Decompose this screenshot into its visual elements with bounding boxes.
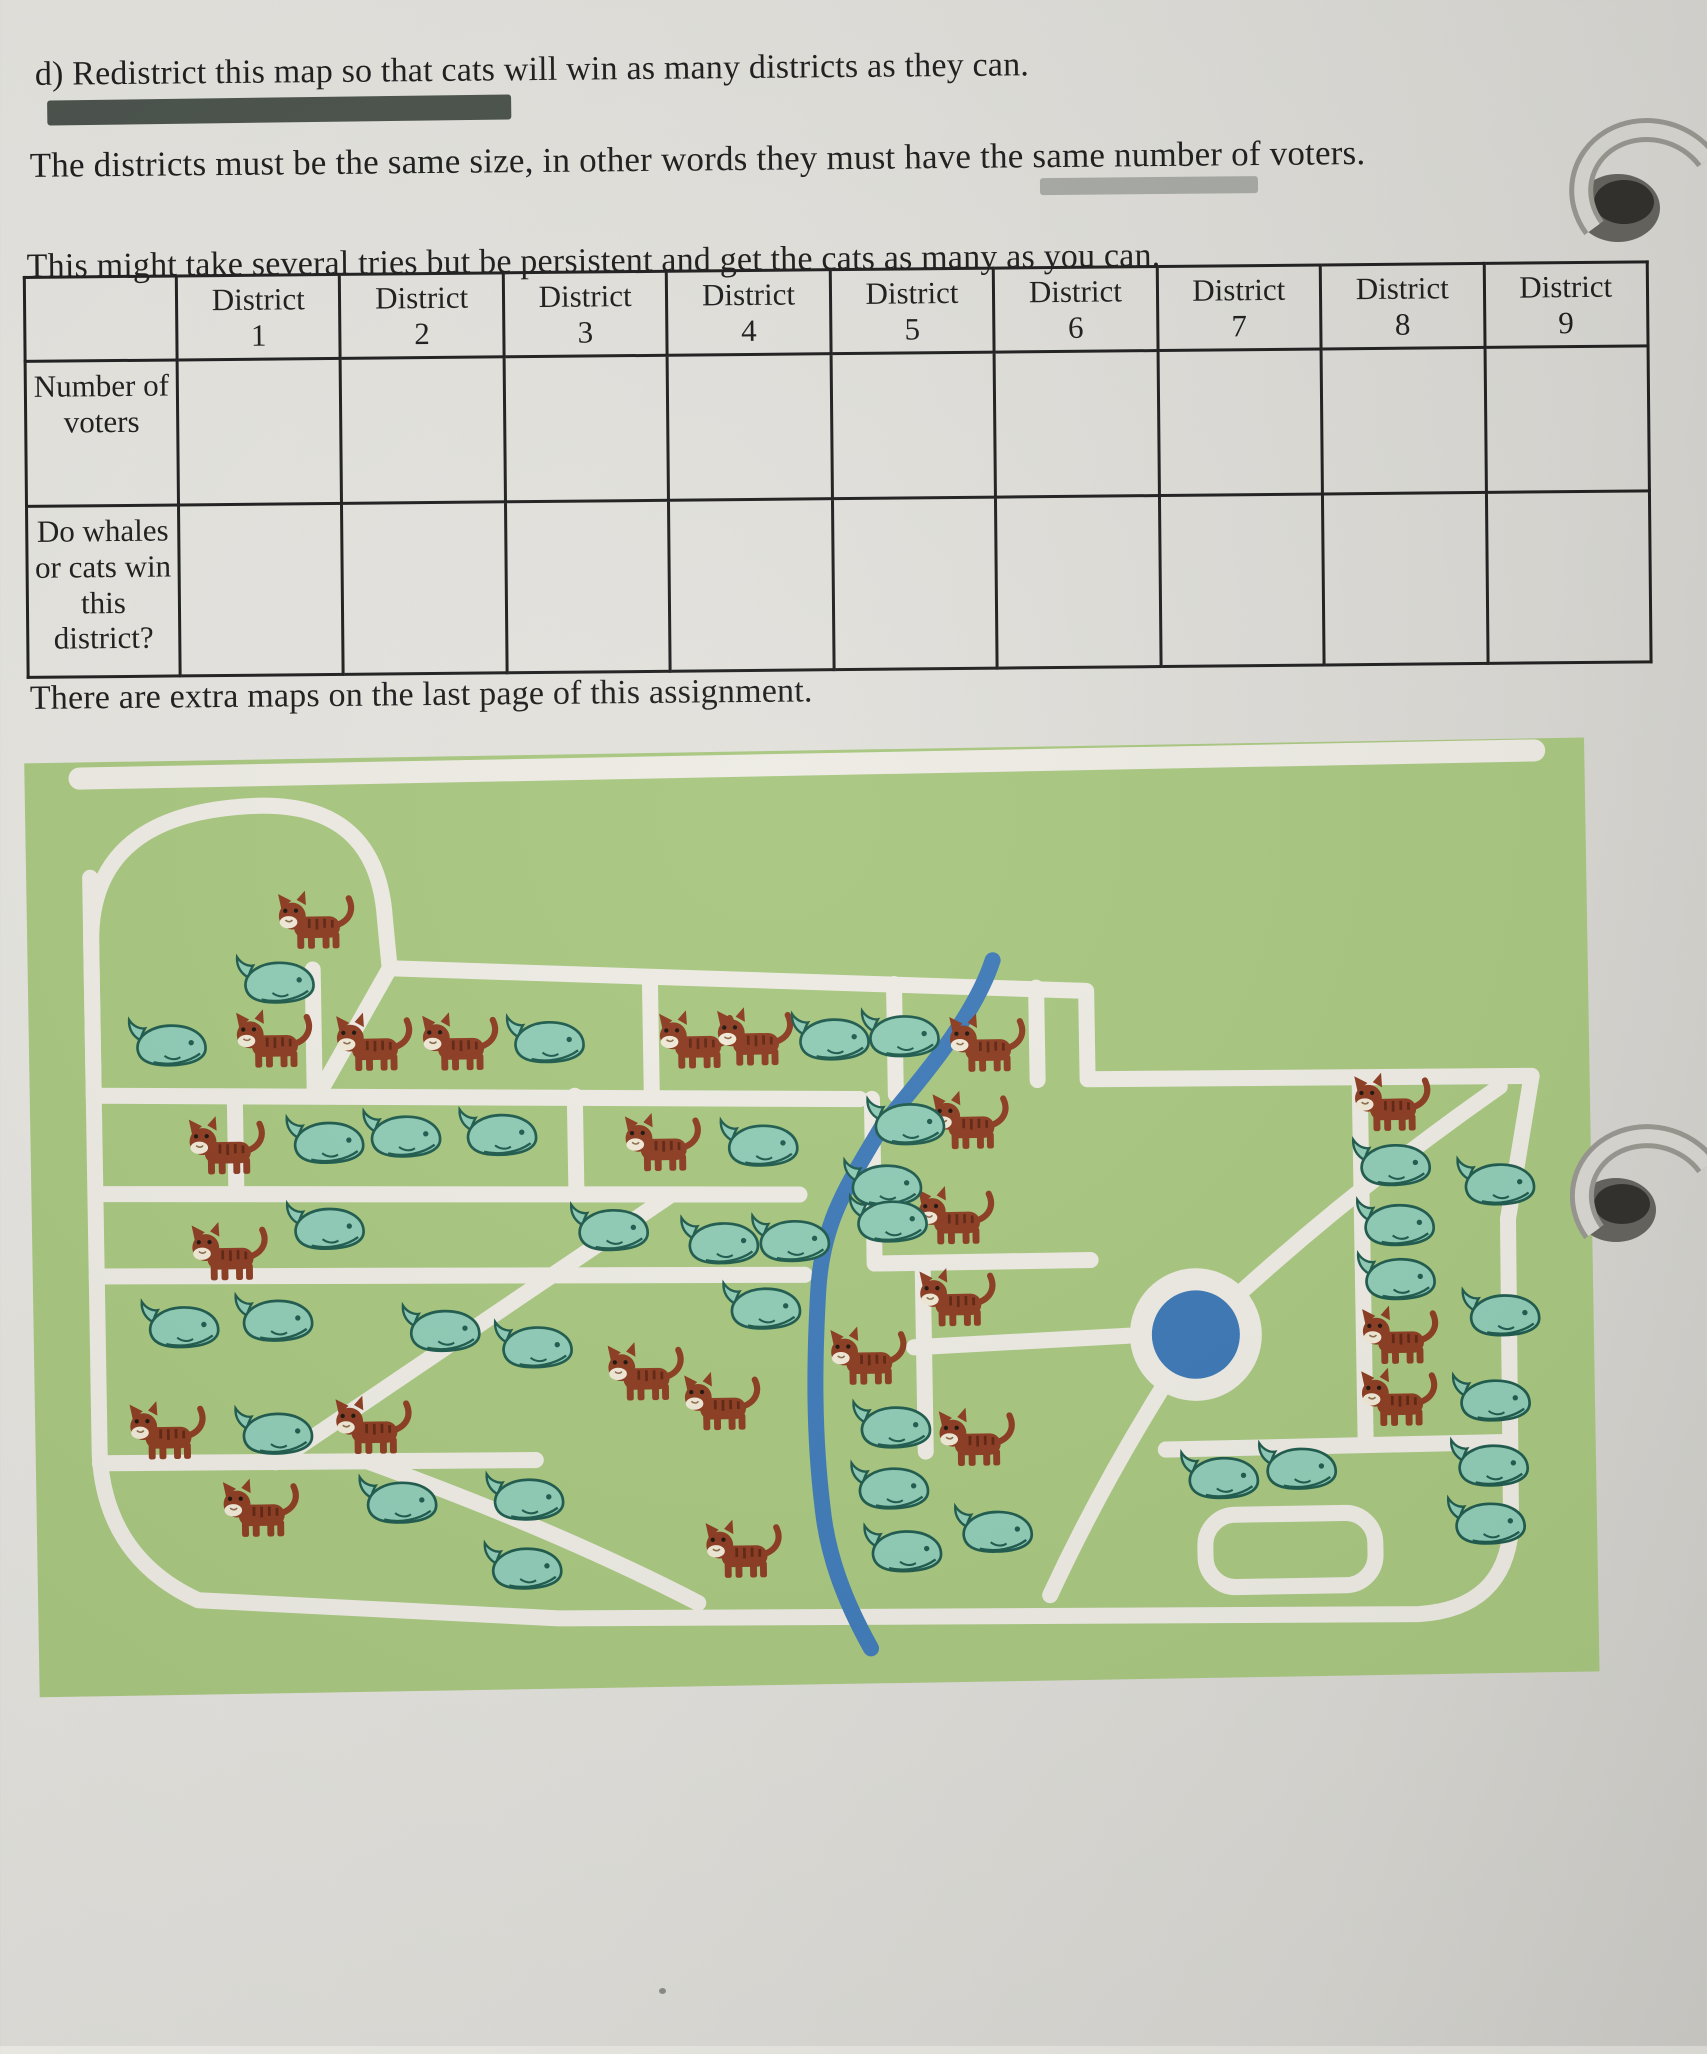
column-header-district-4: District4 [667, 270, 831, 356]
cat-voter-icon [329, 1009, 422, 1081]
voters-answer-cell-d8 [1321, 348, 1486, 495]
whale-voter-icon [449, 1100, 545, 1166]
column-header-district-7: District7 [1157, 265, 1321, 351]
cat-voter-icon [912, 1264, 1005, 1336]
whale-voter-icon [1342, 1130, 1438, 1196]
whale-voter-icon [484, 1313, 580, 1379]
winner-answer-cell-d6 [996, 496, 1161, 669]
whale-voter-icon [854, 1516, 950, 1582]
whale-voter-icon [224, 1398, 320, 1464]
road-loop [1205, 1512, 1376, 1587]
voters-answer-cell-d4 [667, 354, 832, 501]
binder-ring-middle [1570, 1108, 1707, 1308]
cat-voter-icon [822, 1323, 915, 1395]
instruction-line-d: d) Redistrict this map so that cats will… [35, 46, 1030, 94]
column-header-district-1: District1 [176, 274, 340, 360]
whale-voter-icon [131, 1292, 227, 1358]
voters-answer-cell-d7 [1158, 349, 1323, 496]
extra-maps-note: There are extra maps on the last page of… [30, 672, 813, 718]
winner-answer-cell-d8 [1323, 493, 1488, 666]
whale-voter-icon [473, 1533, 569, 1599]
whale-voter-icon [840, 1453, 936, 1519]
column-title: District [509, 279, 662, 315]
whale-voter-icon [496, 1007, 592, 1073]
binder-ring-top [1548, 90, 1707, 300]
road [878, 1260, 1091, 1264]
bleed-through-mark [47, 94, 511, 125]
whale-voter-icon [226, 948, 322, 1014]
whale-voter-icon [842, 1393, 938, 1459]
winner-answer-cell-d9 [1486, 491, 1651, 664]
voters-answer-cell-d2 [341, 357, 506, 504]
district-map [24, 738, 1599, 1698]
column-number: 3 [509, 313, 662, 352]
whale-voter-icon [712, 1273, 808, 1339]
bleed-through-mark [1040, 176, 1258, 195]
cat-voter-icon [931, 1404, 1024, 1476]
row-label-who-wins: Do whales or cats win this district? [27, 505, 181, 677]
column-header-district-5: District5 [830, 268, 994, 354]
cat-voter-icon [414, 1008, 507, 1080]
column-number: 8 [1326, 305, 1479, 344]
winner-answer-cell-d1 [178, 504, 343, 677]
column-number: 1 [182, 316, 335, 355]
column-header-district-8: District8 [1320, 263, 1484, 349]
whale-voter-icon [1452, 1281, 1548, 1347]
column-title: District [1162, 273, 1315, 309]
whale-voter-icon [276, 1194, 372, 1260]
whale-voter-icon [224, 1286, 320, 1352]
voters-answer-cell-d6 [994, 351, 1159, 498]
road [914, 1336, 1128, 1348]
winner-answer-cell-d4 [669, 499, 834, 672]
districts-table: District1 District2 District3 District4 … [23, 260, 1653, 679]
road [79, 750, 1534, 778]
road [95, 1182, 799, 1206]
whale-voter-icon [349, 1467, 445, 1533]
column-title: District [836, 276, 989, 312]
cat-voter-icon [697, 1515, 790, 1587]
road [1036, 988, 1038, 1080]
table-row-who-wins: Do whales or cats win this district? [27, 491, 1652, 678]
column-title: District [672, 277, 825, 313]
winner-answer-cell-d5 [832, 497, 997, 670]
cat-voter-icon [942, 1010, 1035, 1082]
column-number: 6 [999, 308, 1152, 347]
whale-voter-icon [1249, 1433, 1345, 1499]
whale-voter-icon [944, 1496, 1040, 1562]
column-header-district-6: District6 [993, 267, 1157, 353]
whale-voter-icon [1442, 1366, 1538, 1432]
stray-mark [659, 1988, 666, 1994]
table-row-number-of-voters: Number of voters [25, 346, 1649, 507]
cat-voter-icon [121, 1398, 214, 1470]
winner-answer-cell-d7 [1159, 494, 1324, 667]
voters-answer-cell-d3 [504, 356, 669, 503]
column-header-district-2: District2 [340, 273, 504, 359]
column-number: 4 [672, 311, 825, 350]
row-label-number-of-voters: Number of voters [25, 360, 178, 506]
road [1047, 1387, 1166, 1595]
cat-voter-icon [617, 1109, 710, 1181]
winner-answer-cell-d3 [505, 501, 670, 674]
whale-voter-icon [1447, 1149, 1543, 1215]
column-number: 7 [1163, 307, 1316, 346]
cat-voter-icon [215, 1475, 308, 1547]
whale-voter-icon [856, 1089, 952, 1155]
worksheet-page: d) Redistrict this map so that cats will… [0, 0, 1707, 2054]
whale-voter-icon [851, 1001, 947, 1067]
voters-answer-cell-d9 [1485, 346, 1650, 493]
whale-voter-icon [839, 1186, 935, 1252]
cat-voter-icon [327, 1392, 420, 1464]
column-title: District [999, 274, 1152, 310]
whale-voter-icon [118, 1010, 214, 1076]
column-title: District [345, 280, 498, 316]
column-number: 5 [836, 310, 989, 349]
voters-answer-cell-d1 [177, 359, 342, 506]
cat-voter-icon [184, 1218, 277, 1290]
cat-voter-icon [1353, 1364, 1446, 1436]
column-number: 9 [1490, 303, 1643, 342]
whale-voter-icon [741, 1206, 837, 1272]
table-header-row: District1 District2 District3 District4 … [24, 262, 1648, 362]
voters-answer-cell-d5 [831, 352, 996, 499]
whale-voter-icon [560, 1195, 656, 1261]
whale-voter-icon [1440, 1430, 1536, 1496]
cat-voter-icon [181, 1112, 274, 1184]
column-header-district-3: District3 [503, 271, 667, 357]
whale-voter-icon [352, 1102, 448, 1168]
table-corner-cell [24, 276, 177, 362]
whale-voter-icon [1347, 1244, 1443, 1310]
road [575, 1096, 577, 1194]
column-title: District [182, 282, 335, 318]
whale-voter-icon [391, 1295, 487, 1361]
column-number: 2 [346, 314, 499, 353]
cat-voter-icon [229, 1006, 322, 1078]
whale-voter-icon [710, 1111, 806, 1177]
whale-voter-icon [475, 1464, 571, 1530]
column-title: District [1326, 271, 1479, 307]
winner-answer-cell-d2 [342, 502, 507, 675]
cat-voter-icon [676, 1368, 769, 1440]
whale-voter-icon [1437, 1488, 1533, 1554]
cat-voter-icon [1354, 1302, 1447, 1374]
